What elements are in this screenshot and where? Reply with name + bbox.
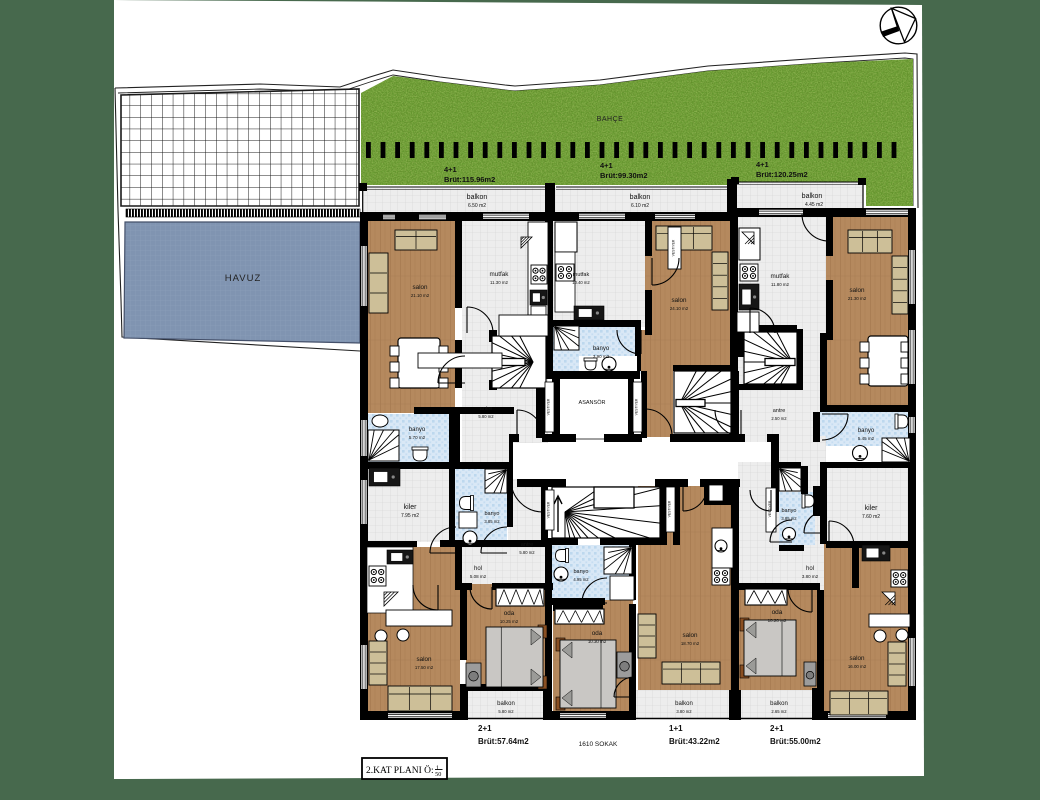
- svg-text:balkon: balkon: [467, 194, 488, 201]
- svg-text:4.45 m2: 4.45 m2: [805, 202, 823, 208]
- svg-text:5.80 m2: 5.80 m2: [478, 414, 494, 419]
- svg-text:5.80 m2: 5.80 m2: [519, 550, 535, 555]
- svg-text:VESTIYER: VESTIYER: [668, 500, 672, 517]
- svg-text:Brüt:115.96m2: Brüt:115.96m2: [444, 175, 495, 184]
- svg-text:banyo: banyo: [574, 569, 589, 575]
- svg-text:salon: salon: [671, 297, 687, 304]
- svg-text:1+1: 1+1: [669, 724, 683, 733]
- svg-text:10.25 m2: 10.25 m2: [500, 619, 519, 624]
- svg-text:11.80 m2: 11.80 m2: [771, 282, 790, 287]
- svg-text:banyo: banyo: [409, 427, 426, 433]
- svg-text:banyo: banyo: [782, 508, 797, 514]
- svg-text:salon: salon: [416, 656, 432, 663]
- svg-text:hol: hol: [806, 566, 814, 572]
- svg-text:salon: salon: [849, 655, 865, 662]
- svg-text:7.95 m2: 7.95 m2: [401, 513, 419, 519]
- svg-text:VESTIYER: VESTIYER: [635, 398, 639, 415]
- svg-text:salon: salon: [412, 284, 428, 291]
- svg-text:2.65 m2: 2.65 m2: [771, 709, 787, 714]
- svg-text:oda: oda: [772, 609, 783, 616]
- svg-text:VESTIYER: VESTIYER: [547, 501, 551, 518]
- svg-text:3.80 m2: 3.80 m2: [802, 574, 819, 579]
- svg-text:2.KAT PLANI Ö: 150: 2.KAT PLANI Ö: 150: [366, 764, 441, 778]
- svg-text:hol: hol: [474, 566, 482, 572]
- svg-text:banyo: banyo: [593, 346, 610, 352]
- svg-text:oda: oda: [504, 610, 515, 617]
- svg-text:antre: antre: [773, 408, 786, 414]
- svg-text:kiler: kiler: [404, 504, 418, 511]
- svg-text:mutfak: mutfak: [573, 272, 590, 278]
- svg-text:2+1: 2+1: [478, 724, 492, 733]
- svg-text:BAHÇE: BAHÇE: [597, 116, 624, 123]
- svg-text:7.60 m2: 7.60 m2: [862, 514, 880, 520]
- svg-text:banyo: banyo: [858, 428, 875, 434]
- svg-text:salon: salon: [682, 632, 698, 639]
- svg-text:5.45 m2: 5.45 m2: [858, 436, 875, 441]
- svg-text:4.95 m2: 4.95 m2: [573, 577, 589, 582]
- svg-text:4+1: 4+1: [756, 160, 769, 169]
- svg-text:Brüt:99.30m2: Brüt:99.30m2: [600, 171, 648, 180]
- svg-text:5.70 m2: 5.70 m2: [409, 435, 426, 440]
- svg-text:HAVUZ: HAVUZ: [225, 273, 262, 284]
- svg-text:11.30 m2: 11.30 m2: [490, 280, 509, 285]
- svg-text:antre: antre: [521, 542, 534, 548]
- svg-text:Brüt:57.64m2: Brüt:57.64m2: [478, 737, 529, 746]
- svg-text:5.80 m2: 5.80 m2: [498, 709, 514, 714]
- svg-text:24.10 m2: 24.10 m2: [670, 306, 689, 311]
- svg-text:10.30 m2: 10.30 m2: [588, 639, 607, 644]
- svg-text:balkon: balkon: [802, 193, 823, 200]
- svg-text:Brüt:43.22m2: Brüt:43.22m2: [669, 737, 720, 746]
- svg-text:3.85 m2: 3.85 m2: [781, 516, 797, 521]
- svg-text:balkon: balkon: [770, 701, 788, 707]
- svg-text:balkon: balkon: [630, 194, 651, 201]
- svg-text:17.50 m2: 17.50 m2: [415, 665, 434, 670]
- svg-text:2.50 m2: 2.50 m2: [771, 416, 787, 421]
- svg-text:4+1: 4+1: [444, 165, 457, 174]
- svg-text:21.10 m2: 21.10 m2: [411, 293, 430, 298]
- svg-text:3.80 m2: 3.80 m2: [676, 709, 692, 714]
- svg-text:oda: oda: [592, 630, 603, 637]
- svg-text:banyo: banyo: [485, 511, 500, 517]
- svg-text:3.90 m2: 3.90 m2: [593, 354, 610, 359]
- svg-text:antre: antre: [480, 406, 493, 412]
- svg-text:VESTIYER: VESTIYER: [672, 239, 676, 256]
- svg-text:2+1: 2+1: [770, 724, 784, 733]
- svg-text:ASANSÖR: ASANSÖR: [579, 399, 606, 406]
- svg-text:mutfak: mutfak: [490, 271, 510, 278]
- svg-text:1610 SOKAK: 1610 SOKAK: [579, 741, 618, 748]
- svg-text:5.08 m2: 5.08 m2: [470, 574, 487, 579]
- svg-text:10.20 m2: 10.20 m2: [768, 618, 787, 623]
- svg-text:4+1: 4+1: [600, 161, 613, 170]
- svg-text:balkon: balkon: [497, 701, 515, 707]
- svg-text:mutfak: mutfak: [771, 273, 791, 280]
- svg-text:16.00 m2: 16.00 m2: [848, 664, 867, 669]
- svg-text:21.30 m2: 21.30 m2: [848, 296, 867, 301]
- svg-text:kiler: kiler: [865, 505, 879, 512]
- svg-text:6.10 m2: 6.10 m2: [631, 203, 649, 209]
- svg-text:salon: salon: [849, 287, 865, 294]
- svg-text:3.85 m2: 3.85 m2: [484, 519, 500, 524]
- svg-text:balkon: balkon: [675, 701, 693, 707]
- svg-text:18.70 m2: 18.70 m2: [681, 641, 700, 646]
- svg-text:Brüt:120.25m2: Brüt:120.25m2: [756, 170, 808, 179]
- svg-text:Brüt:55.00m2: Brüt:55.00m2: [770, 737, 821, 746]
- svg-text:6.50 m2: 6.50 m2: [468, 203, 486, 209]
- svg-text:VESTIYER: VESTIYER: [547, 398, 551, 415]
- svg-text:10.40 m2: 10.40 m2: [572, 280, 590, 285]
